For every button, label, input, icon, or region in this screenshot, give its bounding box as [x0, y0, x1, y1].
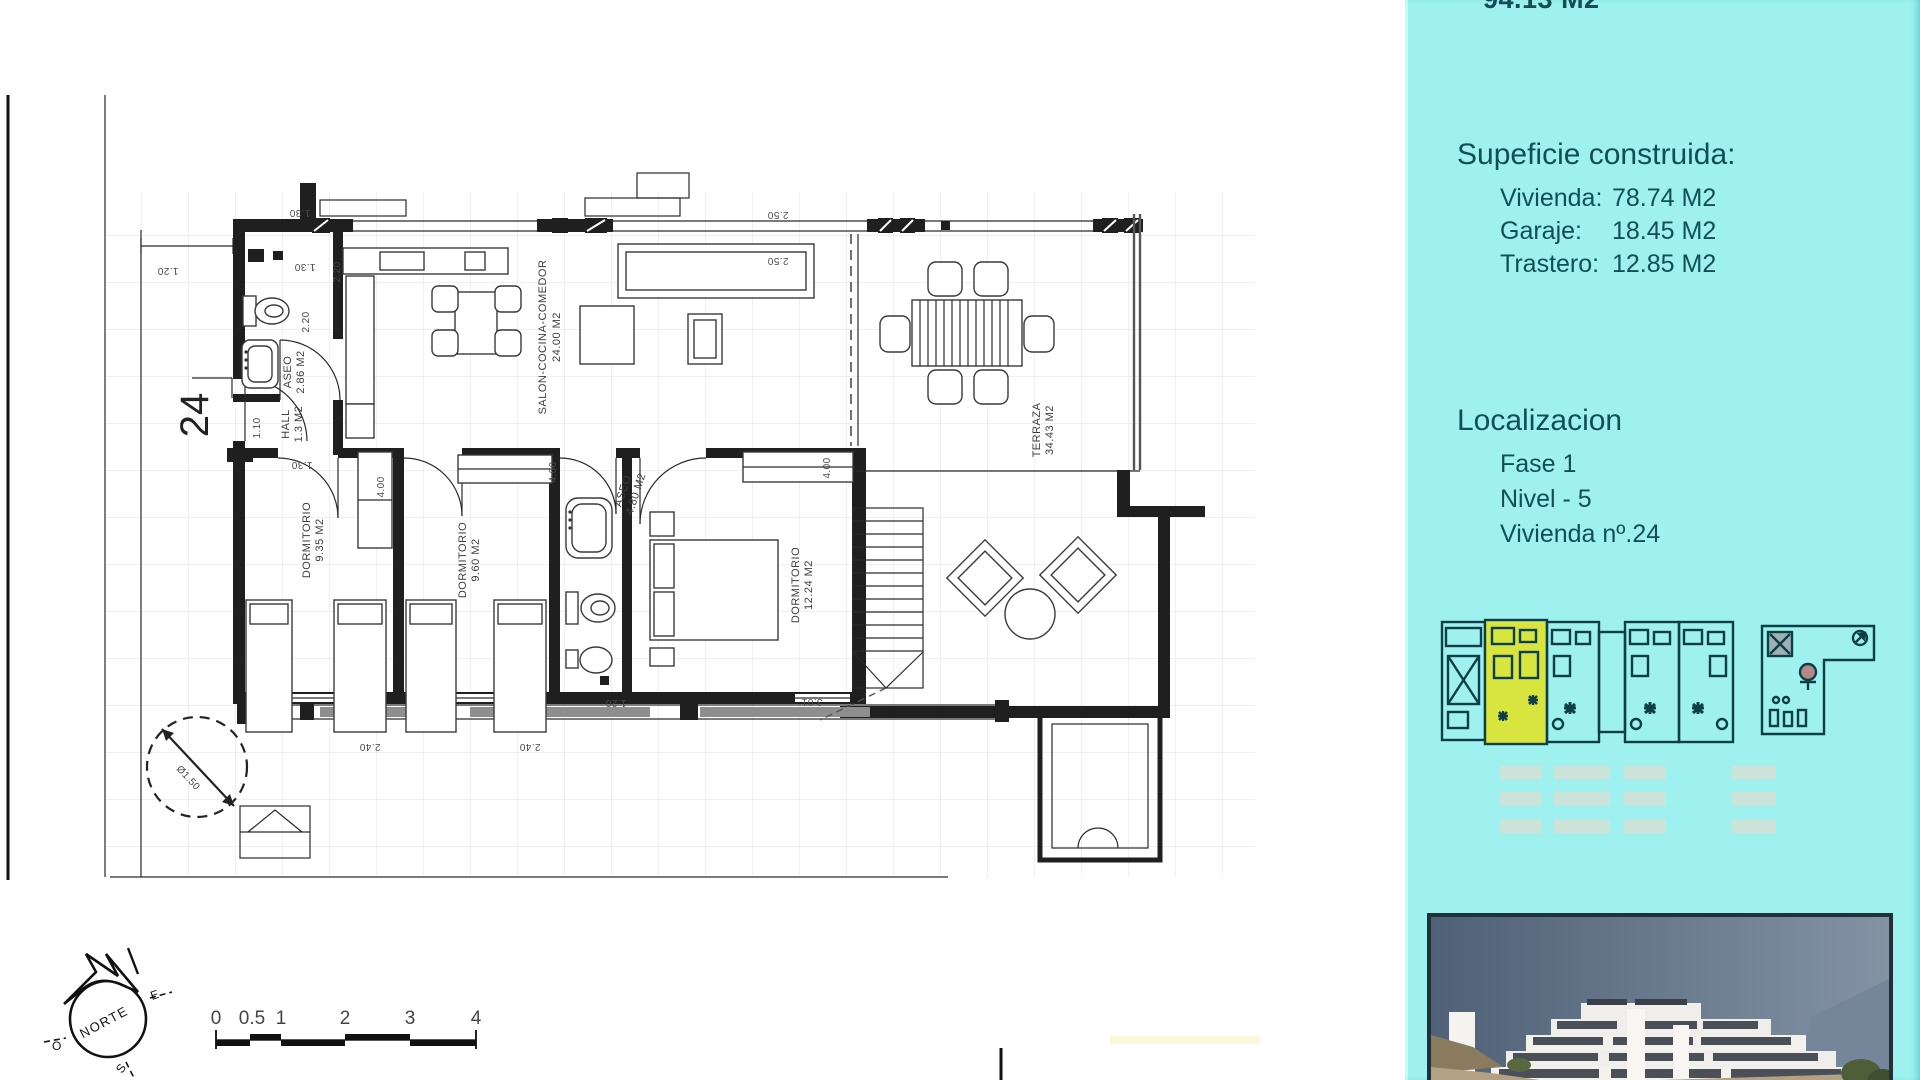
room-label-dorm1-area: 9.35 M2 [314, 518, 326, 561]
compass-east-label: E [149, 987, 161, 1003]
surface-row-value: 12.85 M2 [1612, 250, 1716, 279]
room-label-dorm2-area: 9.60 M2 [470, 538, 482, 581]
surface-row-label: Garaje: [1500, 217, 1582, 245]
dim-2-40-a: 2.40 [359, 741, 380, 752]
room-label-salon-name: SALON-COCINA-COMEDOR [537, 260, 549, 415]
scale-tick-0: 0 [211, 1008, 222, 1029]
room-label-dorm3-area: 12.24 M2 [803, 560, 815, 610]
room-label-hall-name: HALL [280, 409, 292, 439]
dim-1-20-b: 1.20 [605, 697, 626, 708]
site-plan-ghost-rows [1500, 766, 1776, 833]
compass-norte-label: NORTE [77, 1003, 131, 1041]
compass: NORTE E O S [44, 948, 172, 1078]
surface-row-value: 78.74 M2 [1612, 184, 1716, 213]
dim-2-20-a: 2.20 [332, 261, 343, 282]
clipped-top-text: 94.13 M2 [1483, 0, 1600, 15]
dim-4-00-a: 4.00 [376, 476, 387, 497]
surface-row-label: Vivienda: [1500, 184, 1602, 212]
dim-2-20-b: 2.20 [301, 311, 312, 332]
compass-west-label: O [52, 1039, 61, 1053]
room-label-hall-area: 1.3 M2 [293, 406, 305, 443]
dim-1-10: 1.10 [252, 417, 263, 438]
room-label-terraza-name: TERRAZA [1031, 402, 1043, 457]
dim-2-50-a: 2.50 [767, 209, 788, 220]
surface-row-value: 18.45 M2 [1612, 217, 1716, 246]
scale-tick-05: 0.5 [239, 1008, 265, 1029]
dim-4-00-b: 4.00 [548, 461, 559, 482]
dim-1-20-left: 1.20 [157, 265, 178, 276]
site-plan-thumbnail [1432, 608, 1912, 858]
room-label-aseo1-name: ASEO [282, 356, 294, 389]
development-photo-image [1431, 917, 1889, 1080]
room-label-terraza-area: 34.43 M2 [1044, 405, 1056, 455]
highlighter-smudge [1110, 1036, 1260, 1044]
scale-tick-4: 4 [471, 1008, 482, 1029]
surface-row-label: Trastero: [1500, 250, 1599, 278]
surface-row-garaje: Garaje: 18.45 M2 [1500, 217, 1860, 246]
page: 1.20 [0, 0, 1920, 1080]
site-plan-garage-block [1762, 626, 1874, 734]
dim-1-30-c: 1.30 [291, 459, 312, 470]
site-plan-highlighted-unit [1485, 620, 1547, 744]
dim-1-30-b: 1.30 [294, 261, 315, 272]
room-label-dorm3-name: DORMITORIO [790, 547, 802, 623]
room-label-dorm2-name: DORMITORIO [457, 522, 469, 598]
surface-section-heading: Supeficie construida: [1457, 138, 1736, 172]
surface-row-vivienda: Vivienda: 78.74 M2 [1500, 184, 1860, 213]
development-photo [1427, 913, 1893, 1080]
scale-tick-1: 1 [276, 1008, 287, 1029]
dim-2-40-b: 2.40 [519, 741, 540, 752]
scale-bar: 0 0.5 1 2 3 4 [211, 1008, 482, 1049]
dim-2-50-b: 2.50 [767, 255, 788, 266]
scale-tick-2: 2 [340, 1008, 351, 1029]
dim-4-00-c: 4.00 [822, 457, 833, 478]
location-row-nivel: Nivel - 5 [1500, 485, 1592, 514]
location-section-heading: Localizacion [1457, 404, 1622, 438]
info-sidebar: 94.13 M2 Supeficie construida: Vivienda:… [1405, 0, 1920, 1080]
room-label-aseo1-area: 2.86 M2 [295, 350, 307, 393]
surface-row-trastero: Trastero: 12.85 M2 [1500, 250, 1860, 279]
location-row-vivienda: Vivienda nº.24 [1500, 520, 1660, 549]
scale-tick-3: 3 [405, 1008, 416, 1029]
room-label-salon-area: 24.00 M2 [551, 312, 563, 362]
dim-3-01: 3.01 [801, 696, 822, 707]
room-label-dorm1-name: DORMITORIO [301, 502, 313, 578]
unit-number-label: 24 [173, 393, 217, 438]
location-row-fase: Fase 1 [1500, 450, 1576, 479]
north-arrow-icon [64, 954, 138, 1004]
dim-1-30-a: 1.30 [289, 207, 310, 218]
